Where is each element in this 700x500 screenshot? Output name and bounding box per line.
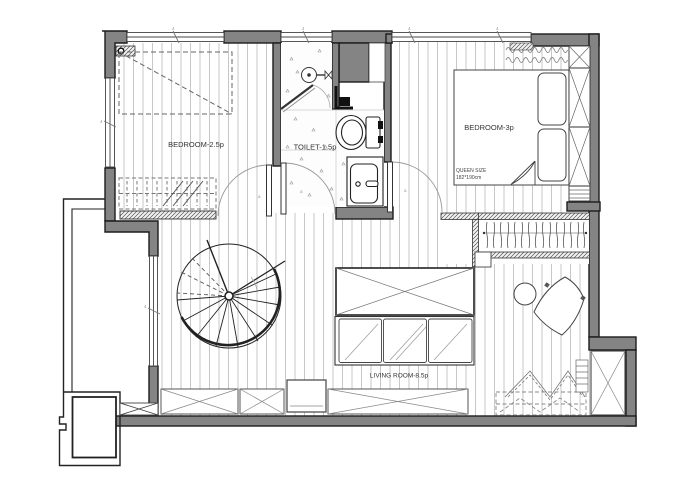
svg-text:4: 4: [100, 119, 103, 124]
svg-text:LIVING ROOM-8.5p: LIVING ROOM-8.5p: [370, 373, 429, 380]
svg-text:4: 4: [172, 26, 175, 31]
svg-text:BEDROOM-3p: BEDROOM-3p: [464, 123, 514, 132]
svg-text:TOILET-1.5p: TOILET-1.5p: [294, 143, 337, 152]
svg-text:182*190cm: 182*190cm: [456, 175, 481, 181]
svg-text:4: 4: [408, 26, 411, 31]
svg-text:BEDROOM-2.5p: BEDROOM-2.5p: [168, 140, 224, 149]
svg-text:4: 4: [144, 304, 147, 309]
svg-text:4: 4: [496, 26, 499, 31]
svg-text:4: 4: [302, 26, 305, 31]
svg-text:QUEEN SIZE: QUEEN SIZE: [456, 168, 487, 174]
